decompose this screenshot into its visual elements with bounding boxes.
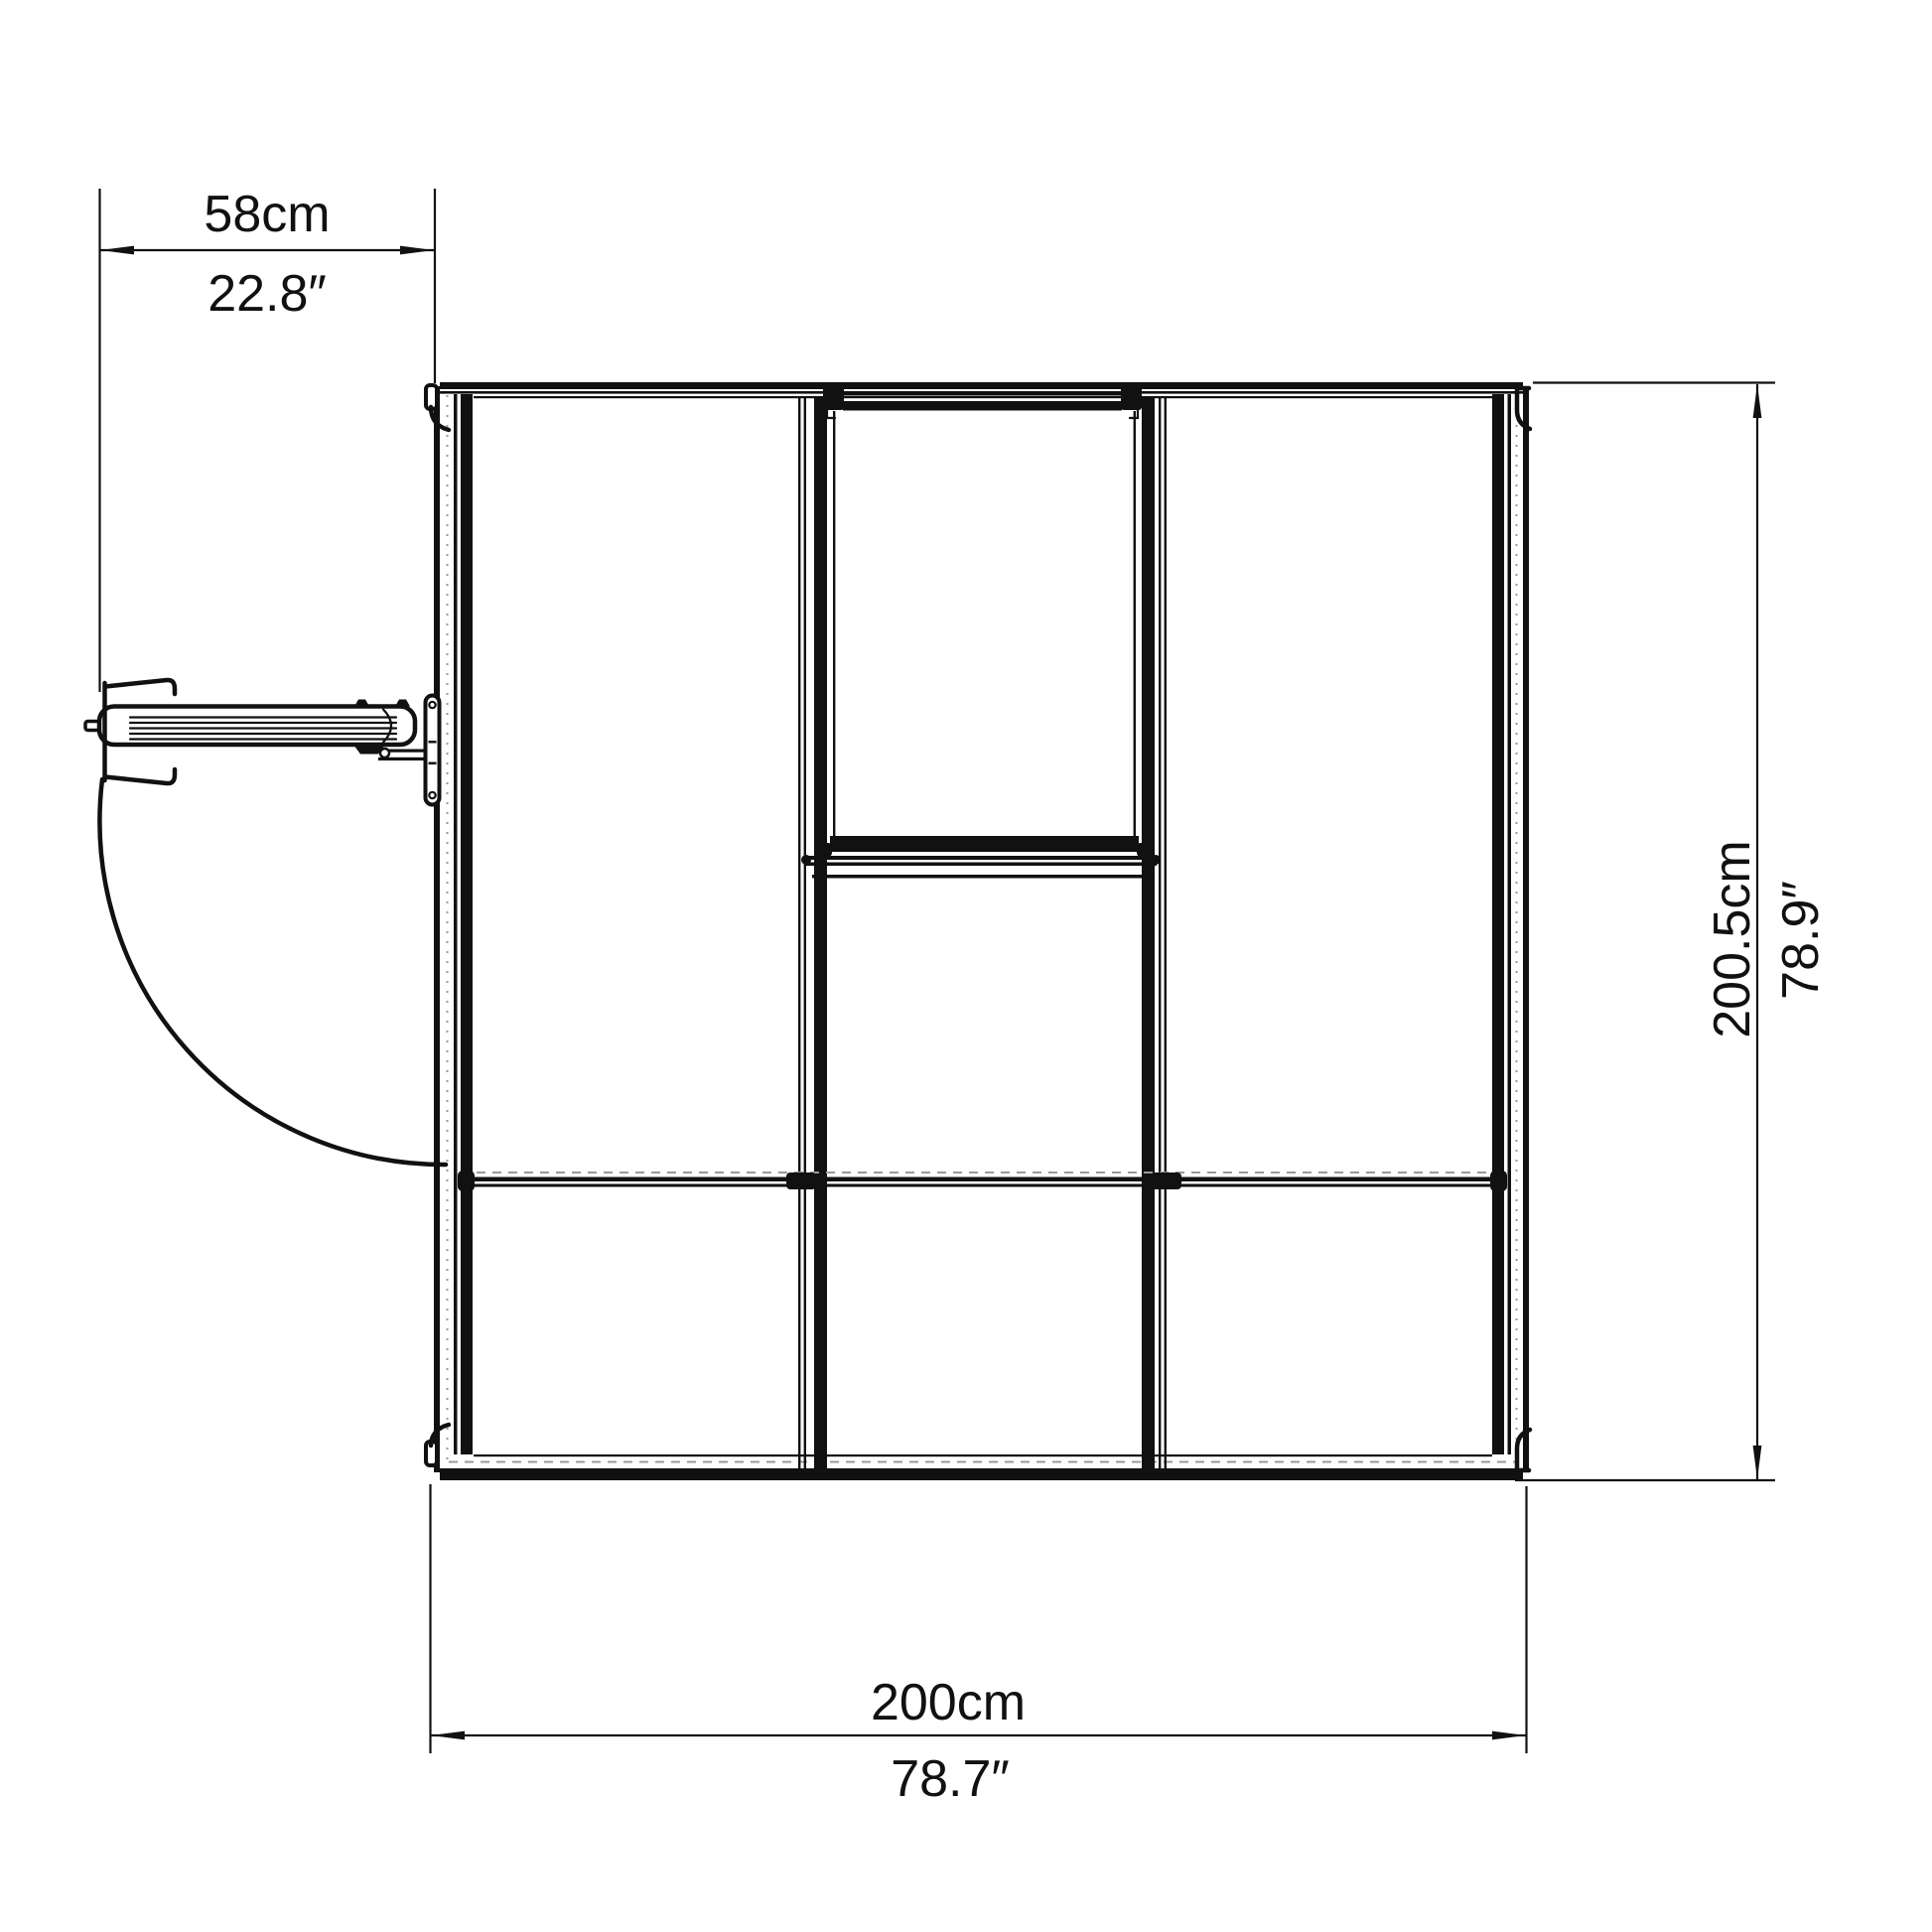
hinge-plate-tick-a xyxy=(429,741,437,744)
door-hinge-knuckle-a xyxy=(354,700,369,707)
hinge-arm-screw xyxy=(380,749,389,758)
vent-right-edge-line xyxy=(1134,411,1136,838)
overall-depth-imperial-label: 78.9″ xyxy=(1772,881,1830,1000)
vent-top-hinge-bar xyxy=(843,401,1122,411)
dimension-overall-depth: 200.5cm 78.9″ xyxy=(1515,383,1830,1481)
mid-rail-line-b xyxy=(806,863,1157,867)
door-dim-arrow-left xyxy=(100,246,134,255)
left-mullion-band xyxy=(814,398,827,1468)
top-wall-outer-band xyxy=(440,382,1523,389)
hinge-plate xyxy=(426,696,440,805)
handle-bottom-arm xyxy=(105,769,175,783)
width-dim-arrow-left xyxy=(431,1731,465,1740)
mid-rail-line-c xyxy=(812,875,1154,879)
roof-vent-window xyxy=(815,386,1154,857)
left-wall-thin-line xyxy=(454,394,458,1454)
top-wall-inner-line xyxy=(474,396,1492,398)
corner-bracket-bottom-left xyxy=(426,1425,449,1465)
right-mullion-band xyxy=(1142,398,1155,1468)
right-frame-post xyxy=(1523,386,1529,1472)
left-doorframe-post xyxy=(434,386,440,1472)
mid-rail-line-a xyxy=(806,856,1157,860)
right-wall-band xyxy=(1492,394,1504,1454)
width-dim-arrow-right xyxy=(1492,1731,1526,1740)
left-mullion-thin-line-a xyxy=(798,398,800,1468)
door-width-metric-label: 58cm xyxy=(204,186,330,243)
mid-rail-right-pin xyxy=(1151,855,1161,865)
door-hinge-knuckle-b xyxy=(395,700,410,707)
vent-bottom-left-foot xyxy=(815,843,832,857)
hinge-plate-tick-b xyxy=(429,762,437,765)
vent-top-thin-bar xyxy=(843,392,1122,396)
bottom-wall-outer-band xyxy=(440,1468,1523,1480)
bottom-wall-inner-line xyxy=(474,1454,1492,1456)
left-mullion xyxy=(798,398,827,1468)
vent-bottom-right-foot xyxy=(1137,843,1154,857)
right-wall-thin-line xyxy=(1508,394,1512,1454)
centre-mid-rail xyxy=(801,855,1161,879)
vent-bottom-bar xyxy=(830,836,1139,852)
technical-drawing-canvas: 58cm 22.8″ 200cm 78.7″ 200.5cm 78.9″ xyxy=(0,0,1932,1932)
knee-rail-left-wall-joint xyxy=(458,1171,475,1191)
depth-dim-arrow-bottom xyxy=(1753,1446,1762,1479)
right-mullion-thin-line-b xyxy=(1165,398,1167,1468)
door-dim-arrow-right xyxy=(400,246,434,255)
door-swing-arc xyxy=(99,779,446,1165)
vent-top-right-block xyxy=(1121,386,1142,410)
left-mullion-thin-line-b xyxy=(804,398,806,1468)
dimension-door-width: 58cm 22.8″ xyxy=(100,186,436,692)
right-mullion xyxy=(1142,398,1167,1468)
handle-top-arm xyxy=(105,680,175,694)
left-wall-band xyxy=(461,394,473,1454)
knee-rail xyxy=(458,1171,1507,1191)
hinge-plate-screw-bottom xyxy=(429,792,435,798)
depth-dim-arrow-top xyxy=(1753,384,1762,418)
knee-rail-line-b xyxy=(475,1184,1491,1187)
door-width-imperial-label: 22.8″ xyxy=(207,265,327,323)
knee-rail-right-mullion-joint xyxy=(1152,1173,1181,1189)
mid-rail-left-pin xyxy=(801,855,811,865)
knee-rail-line-a xyxy=(475,1177,1491,1182)
door-assembly xyxy=(85,680,446,1165)
knee-rail-right-wall-joint xyxy=(1490,1171,1507,1191)
dimension-overall-width: 200cm 78.7″ xyxy=(431,1484,1527,1808)
overall-width-imperial-label: 78.7″ xyxy=(891,1750,1010,1808)
overall-depth-metric-label: 200.5cm xyxy=(1704,840,1761,1037)
knee-rail-left-mullion-joint xyxy=(786,1173,816,1189)
greenhouse-plan xyxy=(426,382,1530,1480)
drawing-page: 58cm 22.8″ 200cm 78.7″ 200.5cm 78.9″ xyxy=(0,0,1932,1932)
vent-top-left-block xyxy=(823,386,844,410)
hinge-plate-screw-top xyxy=(429,702,435,708)
vent-left-edge-line xyxy=(833,411,835,838)
right-mullion-thin-line-a xyxy=(1159,398,1161,1468)
overall-width-metric-label: 200cm xyxy=(871,1674,1026,1731)
